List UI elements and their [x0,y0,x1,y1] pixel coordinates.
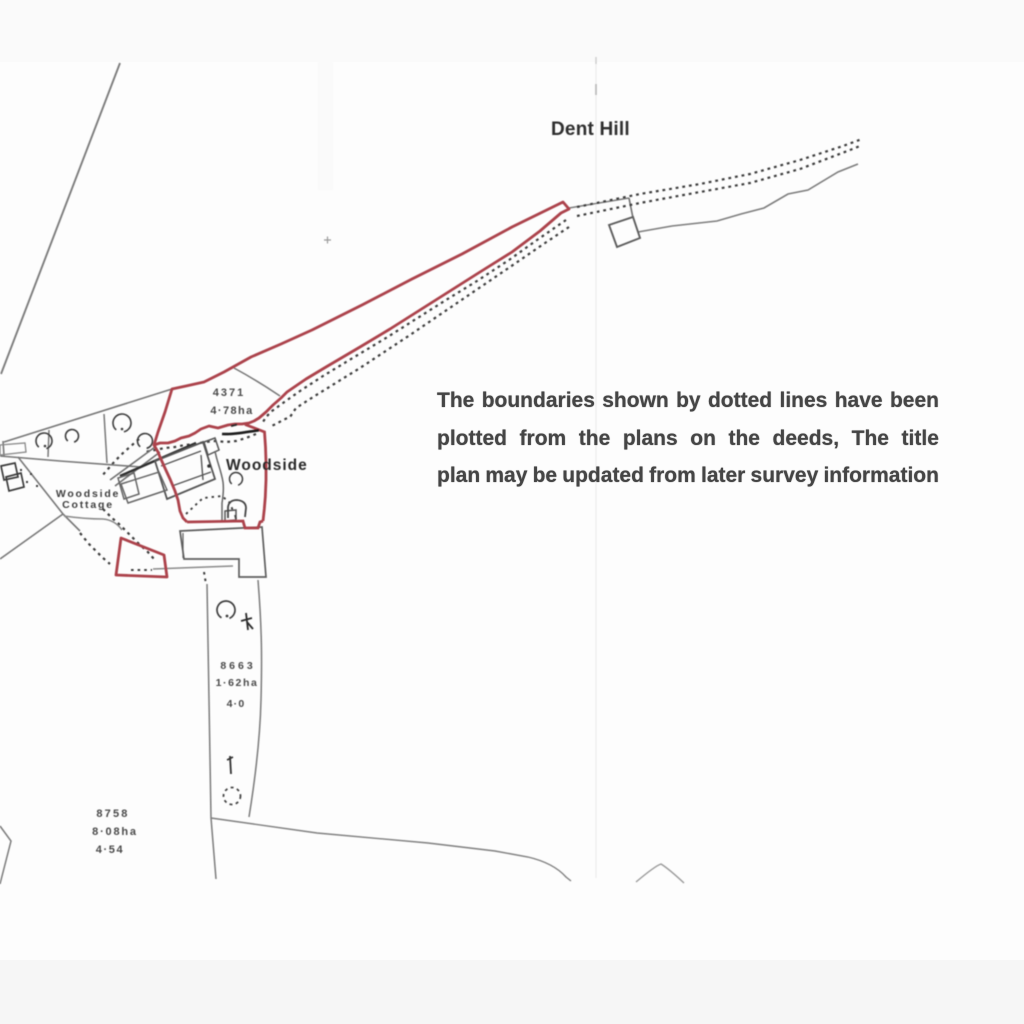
svg-text:8663: 8663 [220,660,255,672]
svg-text:Dent Hill: Dent Hill [551,119,630,140]
svg-text:4·78ha: 4·78ha [210,405,253,417]
svg-text:1·62ha: 1·62ha [216,677,259,689]
svg-text:8·08ha: 8·08ha [92,826,138,838]
svg-text:Cottage: Cottage [62,499,114,511]
svg-text:Woodside: Woodside [226,457,308,474]
svg-text:4·54: 4·54 [96,844,124,856]
svg-text:4371: 4371 [213,387,245,399]
svg-text:8758: 8758 [96,808,129,820]
svg-text:4·0: 4·0 [227,698,246,710]
